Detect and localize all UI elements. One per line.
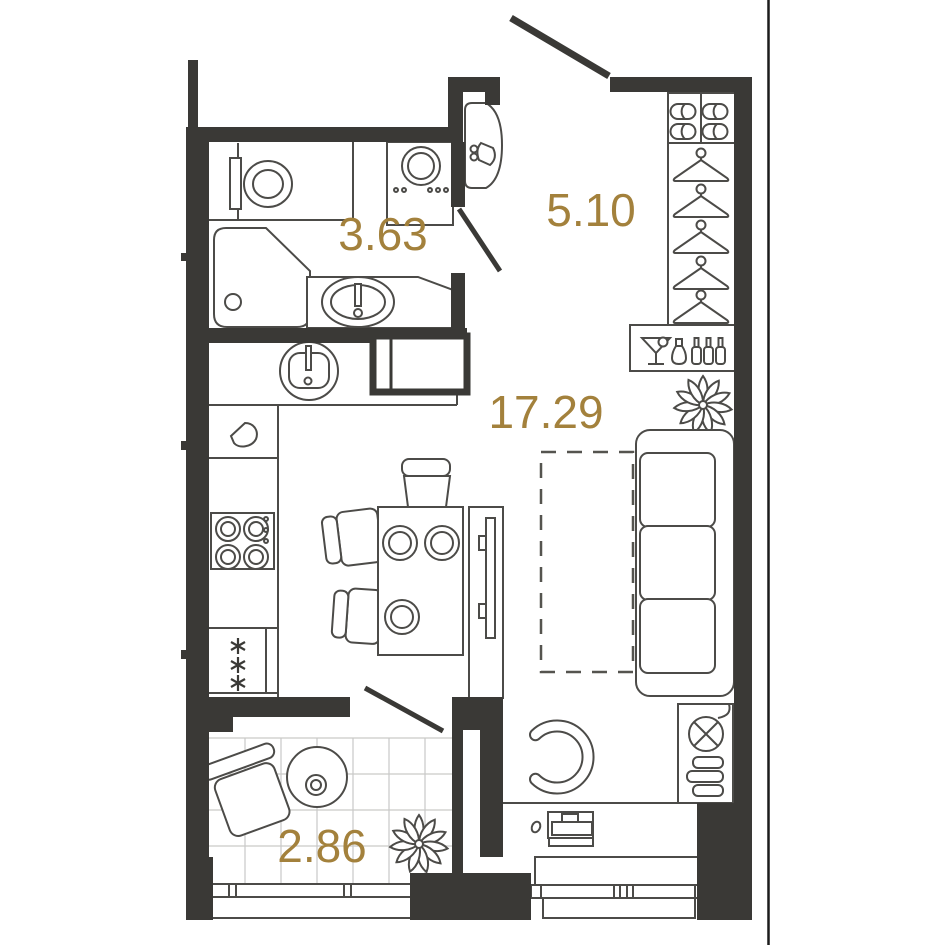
wall-right	[734, 77, 752, 920]
wall-pier-bottom-right	[697, 803, 752, 920]
room-area-living-kitchen: 17.29	[488, 386, 603, 438]
floor-plan: 3.63 5.10 17.29 2.86	[0, 0, 945, 945]
dining-table-icon	[378, 507, 463, 655]
floor-plan-drawing: 3.63 5.10 17.29 2.86	[0, 0, 945, 945]
wall-bathroom-right-upper	[451, 142, 465, 207]
minibar-icon	[630, 325, 735, 371]
bathroom-door-swing-icon	[459, 209, 500, 271]
wall-balcony-right	[452, 730, 463, 890]
wall-entry-left	[448, 77, 500, 92]
balcony-table-icon	[287, 747, 347, 807]
chair-icon	[331, 587, 383, 644]
room-area-hallway: 5.10	[546, 184, 636, 236]
sofa-icon	[636, 430, 734, 696]
water-heater-icon	[465, 103, 502, 188]
cooktop-icon	[211, 513, 274, 569]
bed-space-dashed-icon	[541, 452, 633, 672]
vent-duct	[373, 336, 467, 392]
entrance-door-swing-icon	[511, 18, 609, 76]
shower-cabin-icon	[214, 228, 310, 327]
wall-bathroom-top	[186, 127, 463, 142]
wall-stub-top-left	[188, 60, 198, 128]
living-room-window	[531, 857, 705, 918]
dining-set	[321, 459, 503, 698]
wall-pier-bottom-left	[186, 857, 213, 920]
laptop-icon	[530, 812, 593, 846]
wall-left	[186, 127, 209, 920]
living-area	[503, 430, 734, 846]
toilet-icon	[230, 158, 292, 209]
tv-stand-icon	[469, 507, 503, 698]
fridge-freezer-icon	[231, 638, 245, 691]
kettle-icon	[231, 423, 257, 446]
balcony-plant-icon	[390, 815, 449, 873]
kitchen-sink-icon	[280, 342, 338, 400]
wall-balcony-living	[480, 697, 503, 857]
plant-icon	[674, 376, 733, 434]
balcony-door-swing-icon	[365, 688, 443, 731]
wardrobe	[668, 93, 735, 325]
room-area-balcony: 2.86	[277, 820, 367, 872]
wall-pier-bottom-center	[410, 873, 531, 920]
chair-icon	[321, 508, 383, 568]
room-area-bathroom: 3.63	[338, 208, 428, 260]
wall-entry-right	[610, 77, 752, 92]
radiator-icon	[678, 704, 733, 803]
vanity-sink-icon	[307, 277, 453, 328]
chair-icon	[402, 459, 450, 507]
hallway-fixtures	[465, 93, 735, 434]
